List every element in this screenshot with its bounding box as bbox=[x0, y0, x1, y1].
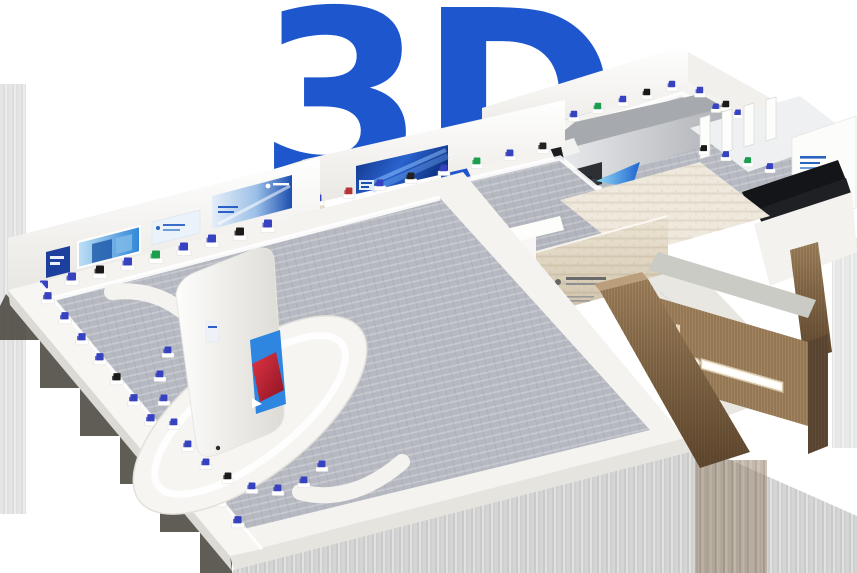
wood-wall-return bbox=[808, 334, 828, 454]
exhibition-3d-scene[interactable]: 3D bbox=[0, 0, 857, 573]
floor-marker bbox=[216, 446, 220, 450]
wood-shadow-streaks bbox=[695, 460, 767, 573]
screenshot-root: 3D bbox=[0, 0, 857, 573]
kiosk-screen bbox=[250, 330, 286, 414]
kiosk-sign bbox=[206, 322, 219, 342]
